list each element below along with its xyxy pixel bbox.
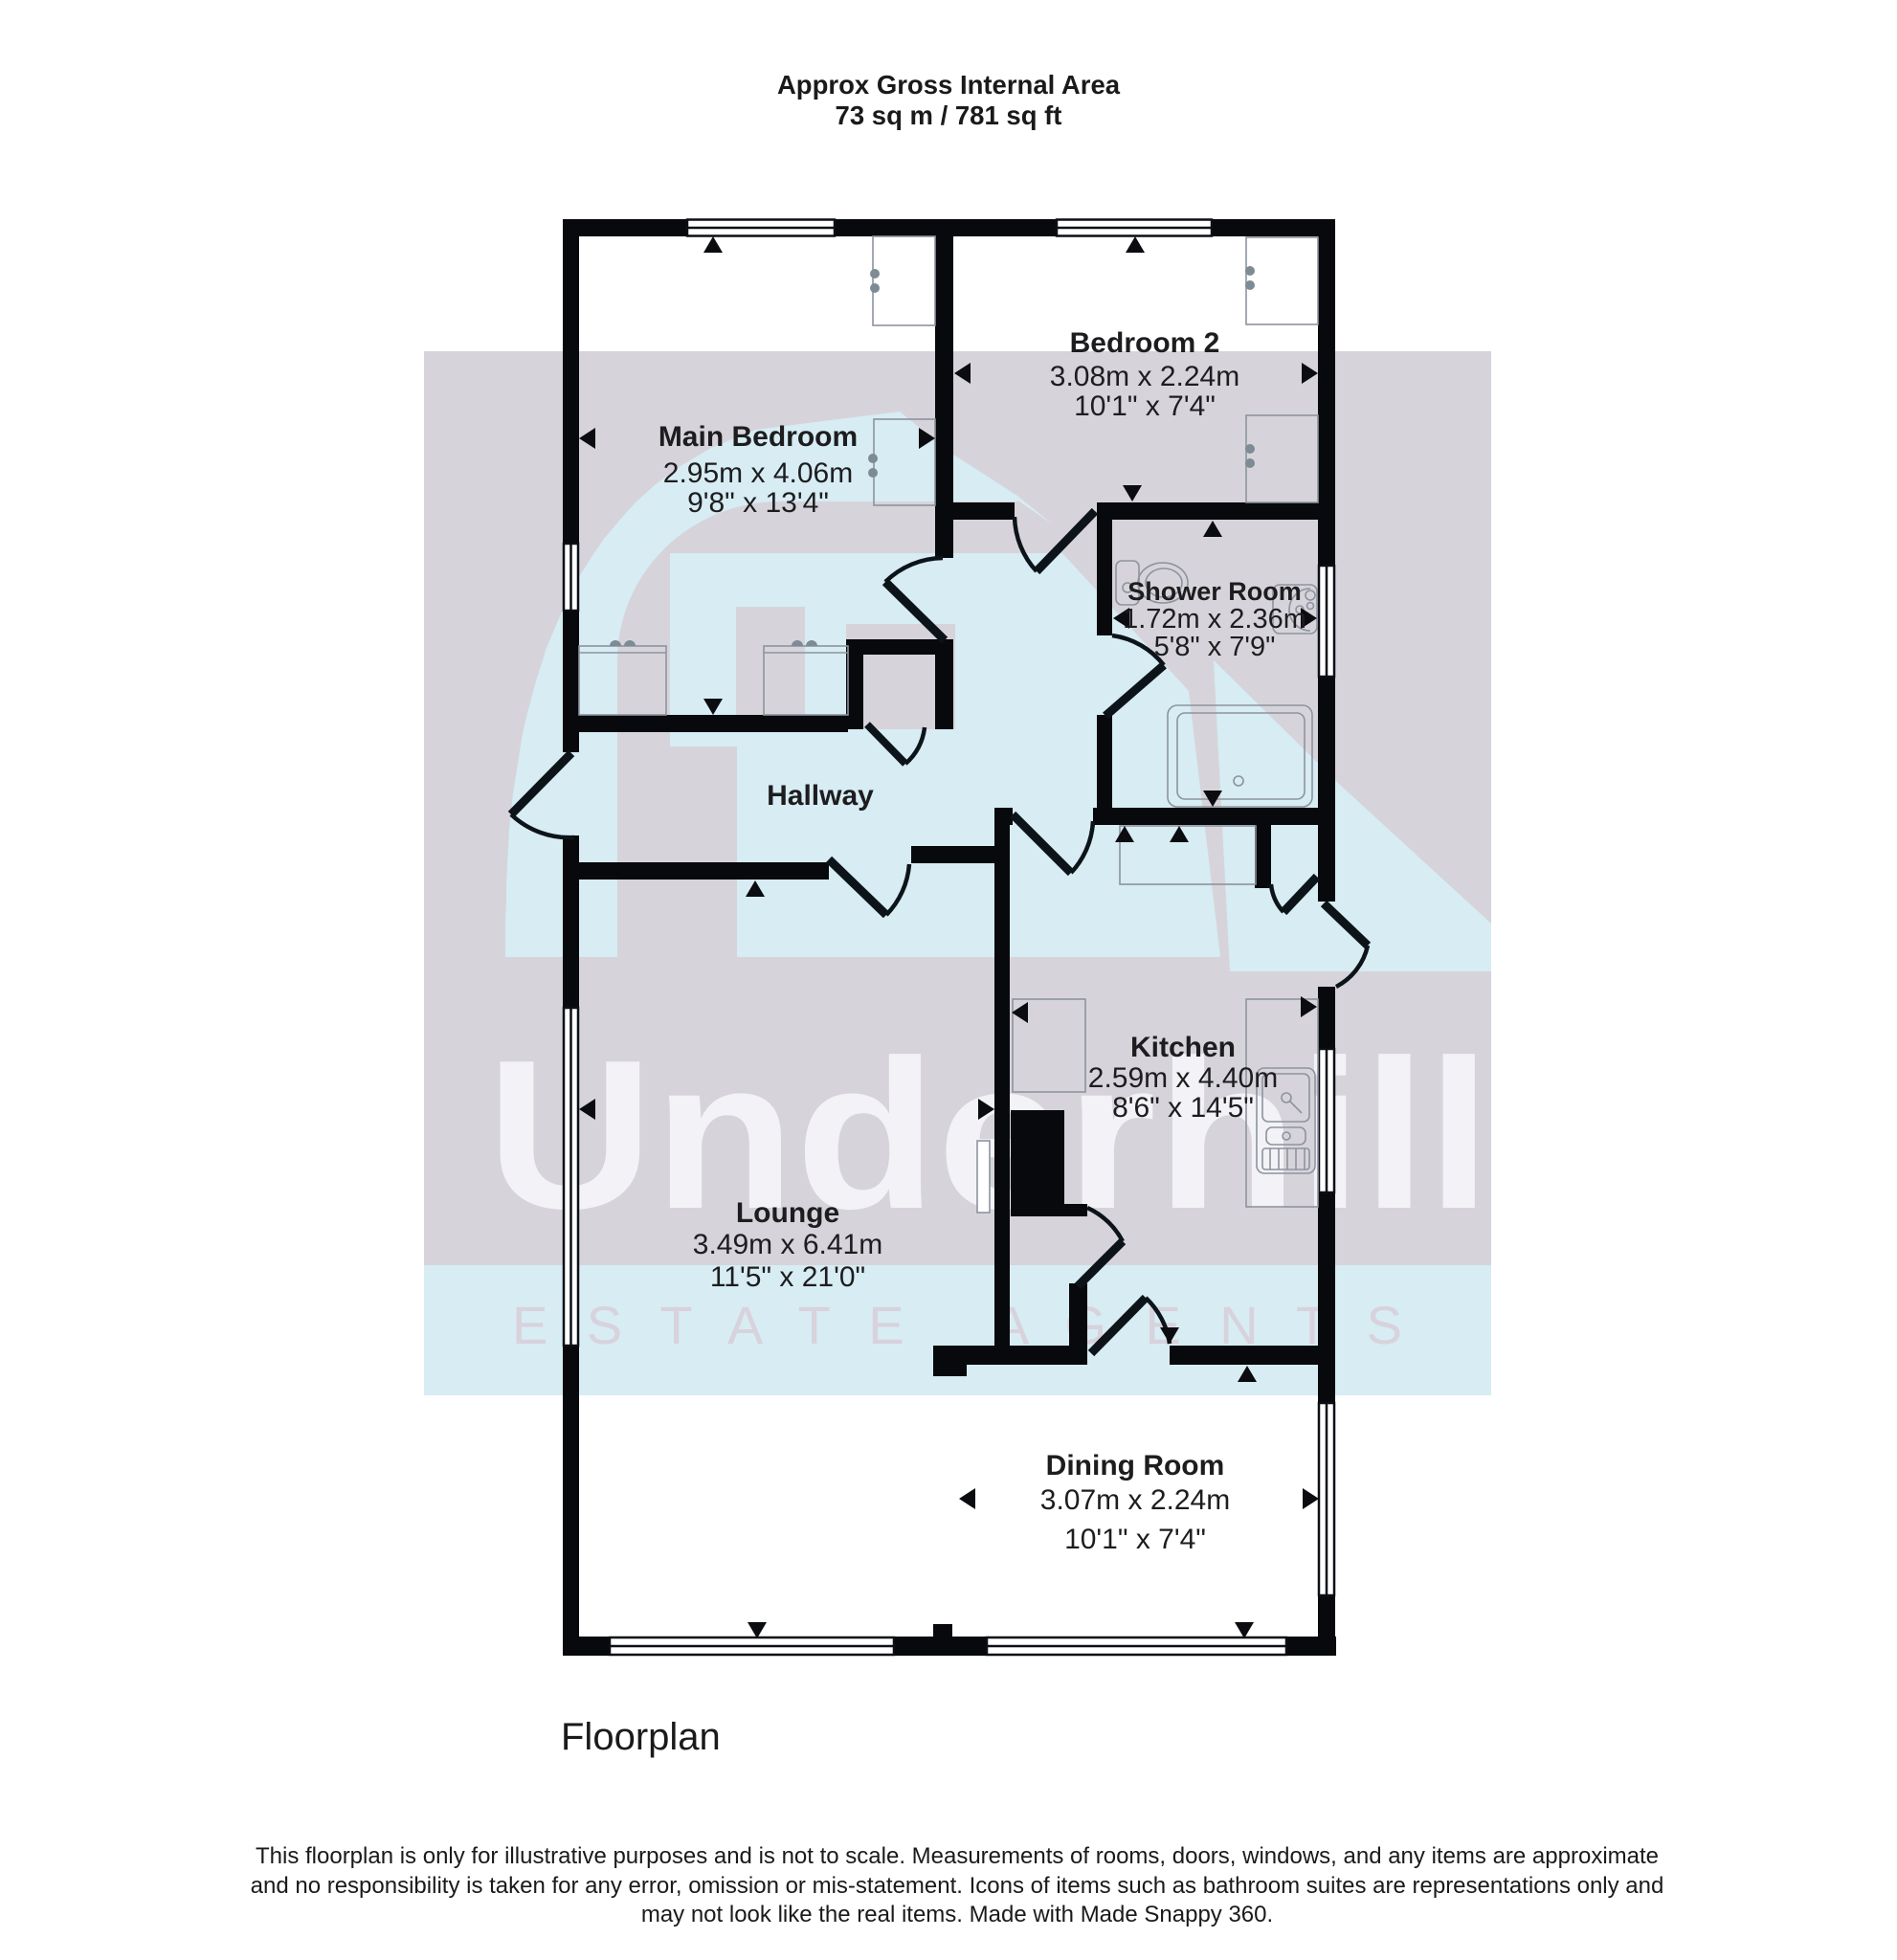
svg-text:1.72m x 2.36m: 1.72m x 2.36m [1123,604,1306,635]
svg-text:3.08m x 2.24m: 3.08m x 2.24m [1050,361,1239,392]
svg-text:5'8" x 7'9": 5'8" x 7'9" [1154,632,1276,662]
svg-text:3.07m x 2.24m: 3.07m x 2.24m [1040,1484,1230,1516]
svg-text:Kitchen: Kitchen [1130,1032,1236,1063]
svg-text:This floorplan is only for ill: This floorplan is only for illustrative … [256,1843,1659,1869]
svg-text:73 sq m / 781 sq ft: 73 sq m / 781 sq ft [836,100,1062,130]
svg-text:3.49m x 6.41m: 3.49m x 6.41m [693,1229,882,1260]
svg-text:Dining Room: Dining Room [1046,1450,1225,1481]
svg-text:2.95m x 4.06m: 2.95m x 4.06m [663,457,853,489]
svg-text:Floorplan: Floorplan [561,1716,721,1758]
svg-text:9'8" x 13'4": 9'8" x 13'4" [687,487,829,519]
svg-text:Bedroom 2: Bedroom 2 [1070,327,1220,359]
svg-text:Underhill: Underhill [486,1016,1491,1254]
svg-text:Approx Gross Internal Area: Approx Gross Internal Area [777,70,1121,100]
svg-text:may not look like the real ite: may not look like the real items. Made w… [641,1902,1273,1927]
svg-text:Shower Room: Shower Room [1127,577,1302,606]
svg-text:Lounge: Lounge [736,1197,839,1229]
svg-text:8'6" x 14'5": 8'6" x 14'5" [1112,1092,1254,1124]
svg-text:11'5" x 21'0": 11'5" x 21'0" [710,1261,865,1293]
svg-text:Hallway: Hallway [767,780,874,812]
svg-text:Main Bedroom: Main Bedroom [658,421,858,453]
svg-text:2.59m x 4.40m: 2.59m x 4.40m [1088,1062,1278,1094]
svg-text:10'1" x 7'4": 10'1" x 7'4" [1074,390,1216,422]
svg-text:and no responsibility is taken: and no responsibility is taken for any e… [251,1873,1664,1899]
svg-text:10'1" x 7'4": 10'1" x 7'4" [1064,1524,1206,1555]
